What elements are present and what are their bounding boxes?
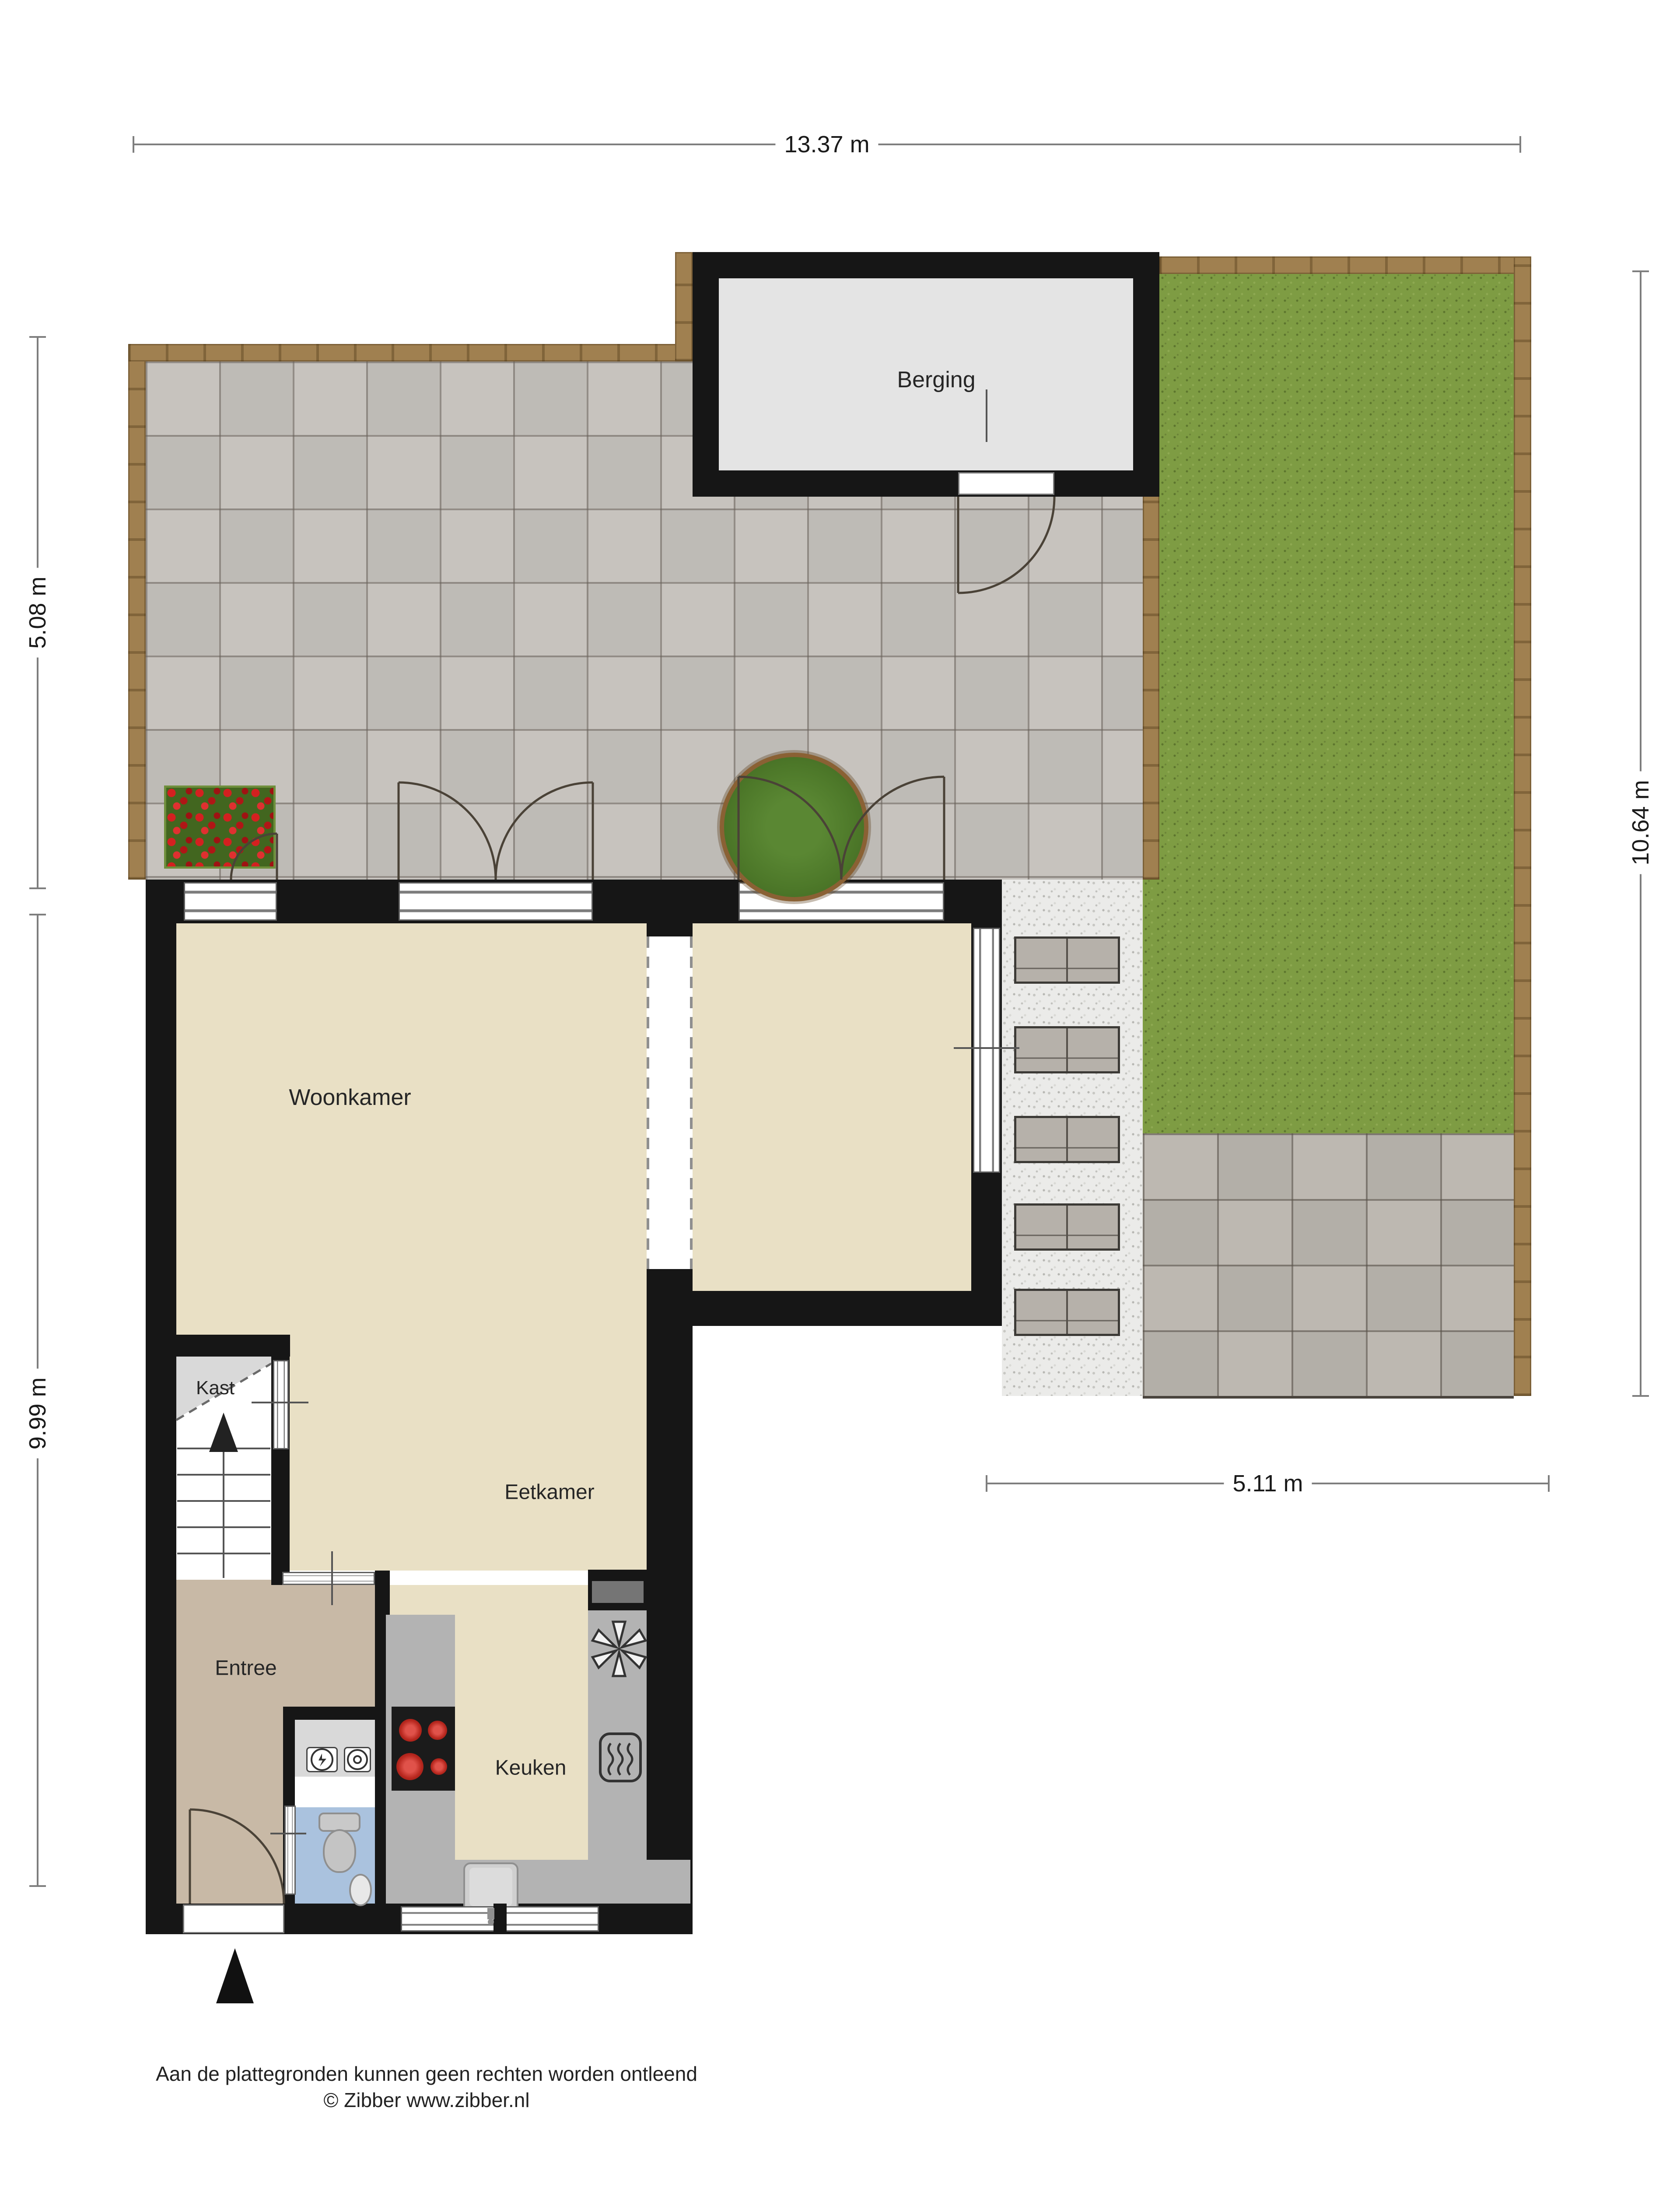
- wall-left: [146, 880, 176, 1934]
- room-label-woonkamer: Woonkamer: [289, 1084, 411, 1111]
- fence-right: [1514, 256, 1531, 1396]
- burner: [430, 1758, 447, 1775]
- stepping-stone: [1014, 1116, 1120, 1163]
- room-label-berging: Berging: [897, 367, 975, 393]
- footer-disclaimer: Aan de plattegronden kunnen geen rechten…: [156, 2062, 697, 2086]
- burner: [396, 1753, 423, 1780]
- burner: [399, 1719, 422, 1742]
- window-tuinkamer-right: [973, 928, 1000, 1173]
- kitchen-counter-right: [588, 1610, 647, 1860]
- wall-kast-top: [176, 1335, 290, 1357]
- dim-tick: [29, 887, 46, 889]
- dim-tick: [133, 136, 134, 153]
- door-entree-eetkamer: [282, 1572, 375, 1585]
- front-door-opening: [183, 1904, 284, 1933]
- burner: [428, 1721, 447, 1740]
- window-stairs: [273, 1360, 289, 1449]
- fence-top-right: [1159, 256, 1531, 274]
- stepping-stone: [1014, 1203, 1120, 1251]
- kitchen-counter-bottom: [386, 1860, 690, 1904]
- window-woonkamer-left: [184, 882, 277, 921]
- window-mullion: [493, 1904, 507, 1934]
- fence-top-left: [128, 344, 693, 361]
- light-meter-icon: [344, 1747, 371, 1772]
- toilet-wall-right: [375, 1720, 386, 1904]
- dim-tick: [986, 1475, 987, 1492]
- toilet-bowl-icon: [323, 1829, 356, 1873]
- electric-meter-icon: [306, 1747, 338, 1772]
- kitchen-stub-inset: [592, 1581, 644, 1603]
- tree-icon: [720, 753, 868, 901]
- dim-tick: [1519, 136, 1521, 153]
- toilet-wall-top: [283, 1707, 386, 1720]
- room-label-keuken: Keuken: [495, 1756, 567, 1780]
- fence-left: [128, 344, 146, 880]
- berging-door-opening: [958, 472, 1054, 495]
- dim-label-left-lower: 9.99 m: [23, 1368, 52, 1458]
- garden-grass: [1159, 274, 1514, 1133]
- dim-tick: [1548, 1475, 1550, 1492]
- dim-label-left-upper: 5.08 m: [23, 568, 52, 657]
- footer-copyright: © Zibber www.zibber.nl: [323, 2088, 529, 2112]
- stepping-stone: [1014, 936, 1120, 984]
- dim-tick: [29, 1885, 46, 1887]
- wall-divider-top: [647, 880, 693, 936]
- dim-label-top: 13.37 m: [775, 130, 878, 159]
- passage-opening: [647, 936, 693, 1269]
- keuken-floor: [455, 1615, 588, 1860]
- washbasin-icon: [349, 1874, 372, 1906]
- north-arrow-icon: [216, 1948, 254, 2003]
- fence-step: [675, 252, 693, 361]
- tuinkamer-floor: [693, 923, 971, 1291]
- dim-tick: [1632, 270, 1649, 272]
- cooktop-icon: [392, 1707, 455, 1791]
- french-doors-woonkamer: [399, 882, 593, 921]
- wall-right-lower: [647, 1326, 693, 1934]
- dim-label-right: 10.64 m: [1626, 771, 1655, 874]
- dim-tick: [29, 914, 46, 915]
- door-toilet: [284, 1806, 296, 1895]
- stepping-stone: [1014, 1026, 1120, 1073]
- dim-label-middle: 5.11 m: [1224, 1469, 1312, 1498]
- wall-tuinkamer-bottom: [647, 1291, 1002, 1326]
- stepping-stone: [1014, 1289, 1120, 1336]
- sink-basin: [469, 1868, 512, 1906]
- room-label-eetkamer: Eetkamer: [504, 1480, 594, 1504]
- garden-pavers: [1143, 1133, 1514, 1399]
- room-label-entree: Entree: [215, 1656, 276, 1680]
- dim-tick: [1632, 1395, 1649, 1397]
- garden-grass-strip: [1143, 880, 1159, 1133]
- room-label-kast: Kast: [196, 1377, 234, 1399]
- toilet-counter: [295, 1777, 375, 1807]
- dim-tick: [29, 336, 46, 338]
- flower-planter-icon: [164, 785, 276, 869]
